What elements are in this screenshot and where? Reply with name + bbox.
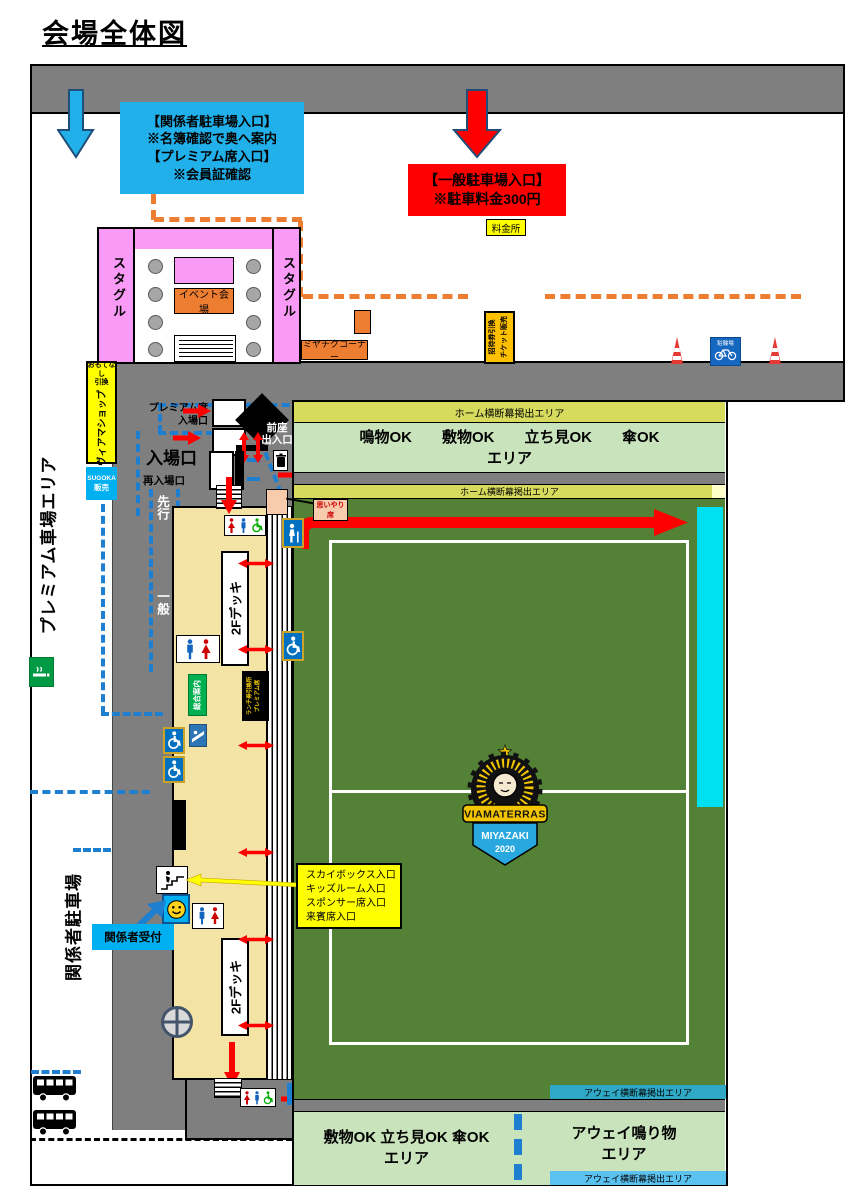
courtesy-seat-label: 思いやり席 <box>313 499 348 521</box>
staff-reception-label: 関係者受付 <box>92 924 174 950</box>
map-border-right <box>843 64 845 402</box>
staff-entry-arrow-icon <box>57 88 95 165</box>
deck-2f-label-north: 2Fデッキ <box>226 581 245 635</box>
lunch-exchange-label: ランチ券引換所 <box>245 677 253 716</box>
route-left-4 <box>73 848 111 852</box>
away-banner-area-bottom: アウェイ横断幕掲出エリア <box>550 1171 726 1185</box>
orange-route-5 <box>545 294 801 299</box>
wheelchair-icon <box>163 727 185 754</box>
lane-priority-label: 先行 <box>153 495 172 520</box>
toilet-sign-north <box>224 515 266 536</box>
red-arrow-vertical <box>252 432 264 468</box>
route-reentry-2 <box>247 477 260 481</box>
sugoka-booth: SUGOKA 販売 <box>86 467 117 500</box>
sugoka-label-1: SUGOKA <box>87 475 116 482</box>
logo-face <box>493 773 517 797</box>
route-premium-4 <box>136 431 140 516</box>
route-left-1 <box>101 504 105 714</box>
home-free-area: 鳴物OK 敷物OK 立ち見OK 傘OK エリア <box>294 423 725 472</box>
stagle-left-label: スタグル <box>109 256 128 320</box>
page-title: 会場全体図 <box>42 12 187 51</box>
club-logo: VIAMATERRAS MIYAZAKI 2020 <box>459 743 551 876</box>
booth <box>354 310 371 334</box>
stand-steps <box>267 506 292 1080</box>
tent-spot <box>246 287 261 302</box>
toilet-sign-mid <box>176 635 220 663</box>
viama-shop-label: ヴィアマショップ <box>94 390 108 466</box>
cyan-seat-strip <box>697 507 723 807</box>
event-booth <box>174 257 234 284</box>
invitation-exchange-label: 招待券引換 <box>487 320 497 355</box>
red-arrow-double <box>238 738 274 758</box>
man-icon <box>197 907 207 925</box>
info-center-label: 総合案内 <box>192 680 203 710</box>
red-arrow-double <box>238 556 274 576</box>
woman-icon <box>243 1091 251 1105</box>
staff-parking-note: 【関係者駐車場入口】 ※名簿確認で奥へ案内 【プレミアム席入口】 ※会員証確認 <box>120 102 304 194</box>
stadium-block: ホーム横断幕掲出エリア 鳴物OK 敷物OK 立ち見OK 傘OK エリア ホーム横… <box>292 400 728 1186</box>
away-banner-area-top: アウェイ横断幕掲出エリア <box>550 1085 726 1099</box>
logo-year-text: 2020 <box>495 844 515 854</box>
woman-icon <box>227 518 236 533</box>
courtesy-corner-box <box>266 489 288 515</box>
red-arrow-double <box>238 932 274 952</box>
man-icon <box>184 639 196 660</box>
away-free-area-label: 敷物OK 立ち見OK 傘OK エリア <box>299 1122 514 1174</box>
red-route-arrow-long <box>296 505 690 554</box>
logo-banner-text: VIAMATERRAS <box>464 809 546 821</box>
deck-2f-label-south: 2Fデッキ <box>226 960 245 1014</box>
sugoka-label-2: 販売 <box>94 482 109 493</box>
traffic-cone-icon <box>768 336 782 370</box>
woman-icon <box>200 639 212 660</box>
meeting-point-icon <box>159 1004 195 1045</box>
stage <box>174 335 236 362</box>
middle-road <box>86 361 845 402</box>
home-banner-area-top: ホーム横断幕掲出エリア <box>294 402 725 423</box>
away-noise-area-label: アウェイ鳴り物 エリア <box>529 1118 719 1170</box>
red-arrow-double <box>238 1018 274 1038</box>
stairs-up-icon <box>156 866 188 894</box>
home-banner-area-bottom: ホーム横断幕掲出エリア <box>294 485 725 499</box>
tent-spot <box>246 259 261 274</box>
wheelchair-icon <box>251 518 263 533</box>
red-arrow-right <box>183 404 211 423</box>
banner-pale-segment <box>712 485 725 498</box>
map-border-left <box>30 64 32 1186</box>
bus-icon <box>32 1074 78 1109</box>
skybox-entrances-note: スカイボックス入口 キッズルーム入口 スポンサー席入口 来賓席入口 <box>296 863 402 929</box>
event-hall-label: イベント会場 <box>174 288 234 314</box>
orange-route-2 <box>154 217 302 222</box>
stage-stripes <box>179 340 233 359</box>
skybox-connector-arrow <box>186 872 300 894</box>
route-left-3 <box>30 790 150 794</box>
woman-icon <box>210 907 220 925</box>
tent-spot <box>148 342 163 357</box>
smoking-area-icon <box>29 657 54 687</box>
lane-general-label: 一般 <box>153 590 172 615</box>
red-arrow-down <box>221 477 237 520</box>
wheelchair-icon <box>263 1091 273 1105</box>
wheelchair-seat-icon <box>282 631 304 661</box>
stagle-top-building <box>133 227 274 251</box>
logo-city-text: MIYAZAKI <box>481 831 529 842</box>
toll-booth-label: 料金所 <box>486 219 526 236</box>
wheelchair-icon <box>163 756 185 783</box>
red-arrow-double <box>238 845 274 865</box>
premium-seat-label: プレミアム席 <box>253 680 261 713</box>
route-left-2 <box>101 712 163 716</box>
venue-map: 会場全体図 【関係者駐車場入口】 ※名簿確認で奥へ案内 【プレミアム席入口】 ※… <box>0 0 848 1200</box>
man-icon <box>239 518 248 533</box>
tent-spot <box>246 315 261 330</box>
bicycle-parking-sign: 駐輪場 <box>710 337 741 366</box>
toilet-sign-exit <box>240 1088 276 1107</box>
ramp-icon <box>189 724 207 747</box>
track-north <box>294 472 725 485</box>
hospitality-exchange-label: おもてなし 引換 <box>87 363 116 387</box>
ticket-sales-label: チケット販売 <box>499 316 509 358</box>
premium-parking-area-label: プレミアム車場エリア <box>35 456 60 635</box>
orange-route-4 <box>303 294 468 299</box>
stagle-right-label: スタグル <box>279 256 298 320</box>
tent-spot <box>148 287 163 302</box>
tent-spot <box>148 259 163 274</box>
away-zone-divider <box>514 1114 522 1180</box>
toilet-sign-south <box>192 903 224 929</box>
general-parking-note: 【一般駐車場入口】 ※駐車料金300円 <box>408 164 566 216</box>
bicycle-parking-label: 駐輪場 <box>711 338 740 347</box>
south-stairs <box>214 1078 242 1098</box>
miyachiku-corner: ミヤチクコーナー <box>301 340 368 360</box>
elderly-priority-icon <box>282 518 304 548</box>
bicycle-icon <box>714 347 738 361</box>
track-south <box>294 1099 725 1112</box>
tent-spot <box>246 342 261 357</box>
map-border-bottom <box>30 1184 294 1186</box>
bus-icon <box>32 1108 78 1143</box>
traffic-cone-icon <box>670 336 684 370</box>
staff-parking-area-label: 関係者駐車場 <box>60 873 85 981</box>
man-icon <box>253 1091 261 1105</box>
main-stand <box>172 506 268 1080</box>
general-entry-arrow-icon <box>452 88 502 165</box>
red-arrow-double <box>238 642 274 662</box>
gate-fence <box>172 800 186 850</box>
entrance-label: 入場口 <box>146 444 197 469</box>
tent-spot <box>148 315 163 330</box>
reentrance-label: 再入場口 <box>143 473 185 488</box>
